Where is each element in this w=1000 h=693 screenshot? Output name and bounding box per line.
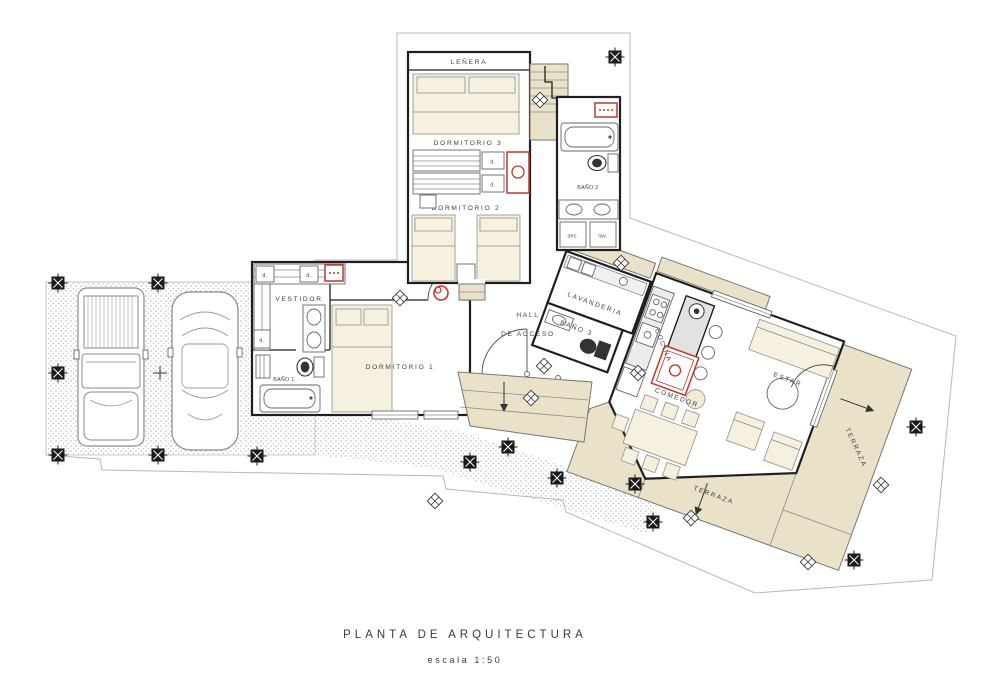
closet-label: d.: [259, 338, 264, 344]
room-label-dormitorio3: DORMITORIO 3: [434, 140, 503, 147]
column-marker: [606, 48, 625, 67]
floor-plan-drawing: LAVANDERIA BAÑO 3: [0, 0, 1000, 693]
room-label-lenera: LEÑERA: [451, 57, 488, 66]
closet-label: d.: [262, 273, 267, 279]
room-bano2: BAÑO 2 sec. lav.: [557, 97, 620, 250]
room-label-dormitorio2: DORMITORIO 2: [432, 205, 501, 212]
top-wing: LEÑERA DORMITORIO 3 d. d.: [408, 52, 530, 300]
room-label-dormitorio1: DORMITORIO 1: [366, 364, 435, 371]
bathtub: [561, 123, 618, 151]
pickup-truck: [74, 288, 148, 446]
electrical-box-icon: [595, 103, 617, 117]
washer-label: lav.: [598, 234, 607, 240]
toilet-tank: [314, 357, 324, 377]
closet-label: d.: [490, 183, 495, 189]
ceiling-light-icon: [427, 493, 443, 509]
room-label-vestidor: VESTIDOR: [275, 296, 322, 303]
room-label-bano1: BAÑO 1: [273, 376, 294, 383]
dryer-label: sec.: [567, 234, 578, 240]
wood-stove-icon: [507, 152, 529, 193]
closet-label: d.: [306, 273, 311, 279]
room-label-hall-1: HALL: [516, 312, 539, 319]
left-wing: d. d. d. VESTIDOR: [252, 262, 470, 419]
drawing-scale: escala 1:50: [428, 655, 503, 665]
sedan-car: [168, 292, 242, 450]
bathtub: [260, 385, 320, 412]
drawing-title: PLANTA DE ARQUITECTURA: [343, 629, 587, 641]
floor-plan-page: LAVANDERIA BAÑO 3: [0, 0, 1000, 693]
nightstand: [457, 264, 475, 281]
title-block: PLANTA DE ARQUITECTURA escala 1:50: [343, 629, 587, 665]
ceiling-light-icon: [873, 477, 889, 493]
closet-label: d.: [490, 160, 495, 166]
toilet-tank: [608, 154, 618, 172]
column-marker: [907, 418, 926, 437]
electrical-box-icon: [325, 265, 343, 281]
room-label-bano2: BAÑO 2: [577, 184, 598, 191]
column-marker: [845, 551, 864, 570]
